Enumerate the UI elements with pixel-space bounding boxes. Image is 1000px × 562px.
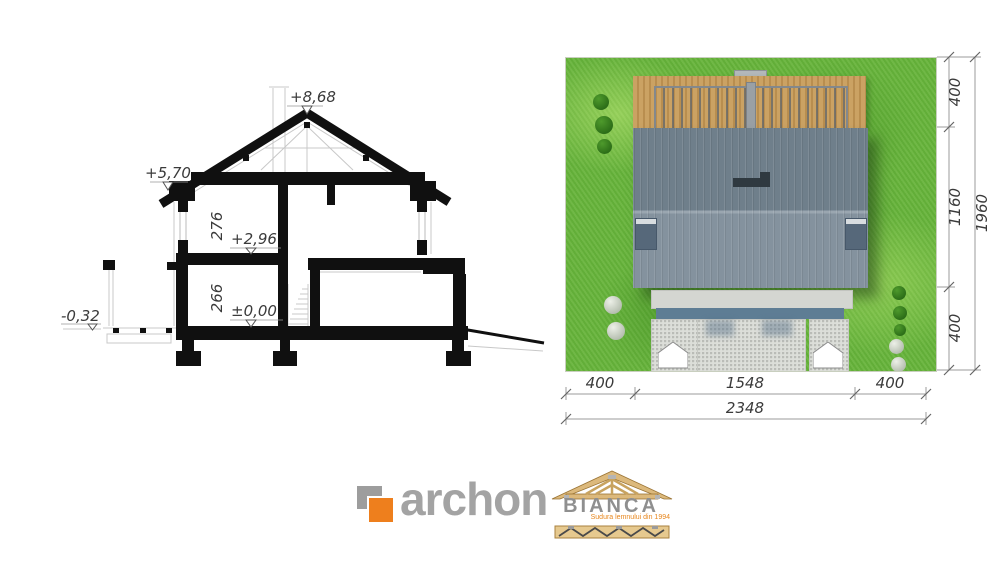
dim-bottom-total: 2348 [726,399,764,417]
front-wall-strip [656,308,844,319]
level-eave-label: +5,70 [145,164,191,182]
bianca-beam-icon [554,523,670,541]
bush-icon [593,94,609,110]
site-plan-right-dimensions: 400 1160 400 1960 [935,50,1000,380]
dim-right-total: 1960 [973,194,991,232]
bush-icon [889,339,904,354]
bush-icon [604,296,622,314]
level-ridge-label: +8,68 [290,88,336,106]
driveway-ramp-line [462,329,544,343]
roof-window [635,218,657,250]
house-roof [633,128,868,288]
dim-bottom-center: 1548 [726,374,764,392]
height-upper-label: 276 [208,212,226,241]
bush-icon [893,306,907,320]
bush-icon [894,324,906,336]
site-plan-view [565,57,937,372]
dim-right-bottom: 400 [946,314,964,343]
bianca-logo: BIANCA Sudura lemnului din 1994 [550,467,674,545]
dim-right-top: 400 [946,78,964,107]
cross-section-drawing: +8,68 +5,70 276 +2,96 266 ±0,00 -0,32 [55,78,550,378]
archon-logo: archon [345,480,550,540]
entrance-arrow-icon [813,342,843,369]
wood-terrace [633,76,866,128]
roof-vent [760,172,770,179]
attic-floor-slab [191,172,425,185]
bush-icon [892,286,906,300]
bush-icon [891,357,906,372]
bush-icon [597,139,612,154]
ground-slab [176,326,468,340]
level-upper-floor-label: +2,96 [231,230,277,248]
entrance-arrow-icon [658,342,688,369]
level-ground-floor-label: ±0,00 [231,302,277,320]
archon-logo-orange-square-icon [367,496,395,524]
bianca-logo-tagline: Sudura lemnului din 1994 [574,514,670,521]
dim-bottom-right: 400 [876,374,905,392]
pergola-center-beam [746,82,756,130]
bush-icon [595,116,613,134]
height-ground-label: 266 [208,284,226,313]
archon-logo-text: archon [400,472,547,526]
dim-right-middle: 1160 [946,188,964,226]
driveway-shade [762,320,792,336]
dim-bottom-left: 400 [586,374,615,392]
front-terrace-strip [651,290,853,309]
section-construction-lines [63,87,543,351]
roof-vent [733,178,770,187]
section-structure [103,113,544,366]
driveway-shade [706,320,734,336]
bush-icon [607,322,625,340]
level-terrain-label: -0,32 [61,307,100,325]
upper-floor-slab [176,253,287,265]
site-plan-bottom-dimensions: 400 1548 400 2348 [556,372,951,427]
roof-window [845,218,867,250]
architectural-sheet: +8,68 +5,70 276 +2,96 266 ±0,00 -0,32 [0,0,1000,562]
garage-ceiling [308,258,428,270]
